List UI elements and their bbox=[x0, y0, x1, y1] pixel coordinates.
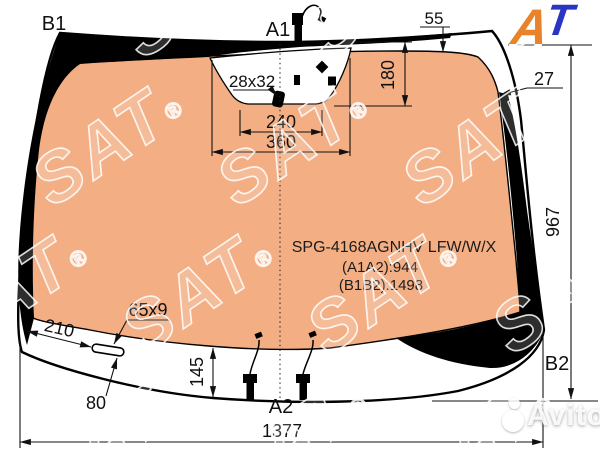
label-b2: B2 bbox=[545, 353, 569, 375]
part-b1b2-length: (B1B2):1498 bbox=[339, 277, 423, 294]
part-a1a2-length: (A1A2):944 bbox=[342, 259, 418, 276]
label-b1: B1 bbox=[42, 13, 66, 35]
label-a1: A1 bbox=[266, 19, 290, 41]
at-logo: T A bbox=[512, 0, 598, 52]
windshield-technical-drawing: 240 360 180 28x32 55 27 967 1377 145 65x… bbox=[0, 0, 600, 450]
antenna-connector-a1 bbox=[292, 5, 326, 43]
windshield-diagram-page: 240 360 180 28x32 55 27 967 1377 145 65x… bbox=[0, 0, 600, 450]
dim-sensor-top-width: 360 bbox=[266, 132, 296, 152]
dim-slot-offset-bottom: 80 bbox=[86, 393, 106, 413]
dim-bottom-band: 145 bbox=[187, 357, 207, 387]
dim-slot-size: 65x9 bbox=[128, 300, 167, 320]
small-mark-right bbox=[328, 77, 336, 86]
dim-top-offset: 55 bbox=[425, 9, 444, 28]
small-mark-left bbox=[294, 75, 300, 85]
label-a2: A2 bbox=[269, 396, 293, 418]
dim-glass-width: 1377 bbox=[262, 421, 302, 441]
at-logo-letter-a: A bbox=[508, 0, 552, 56]
dim-glass-height: 967 bbox=[543, 207, 563, 237]
part-number: SPG-4168AGNHV LFW/W/X bbox=[292, 239, 497, 256]
dim-sensor-bracket: 28x32 bbox=[229, 72, 275, 91]
dim-side-band: 27 bbox=[534, 69, 554, 89]
dim-sensor-height: 180 bbox=[378, 60, 398, 90]
dim-sensor-bottom-width: 240 bbox=[266, 112, 296, 132]
